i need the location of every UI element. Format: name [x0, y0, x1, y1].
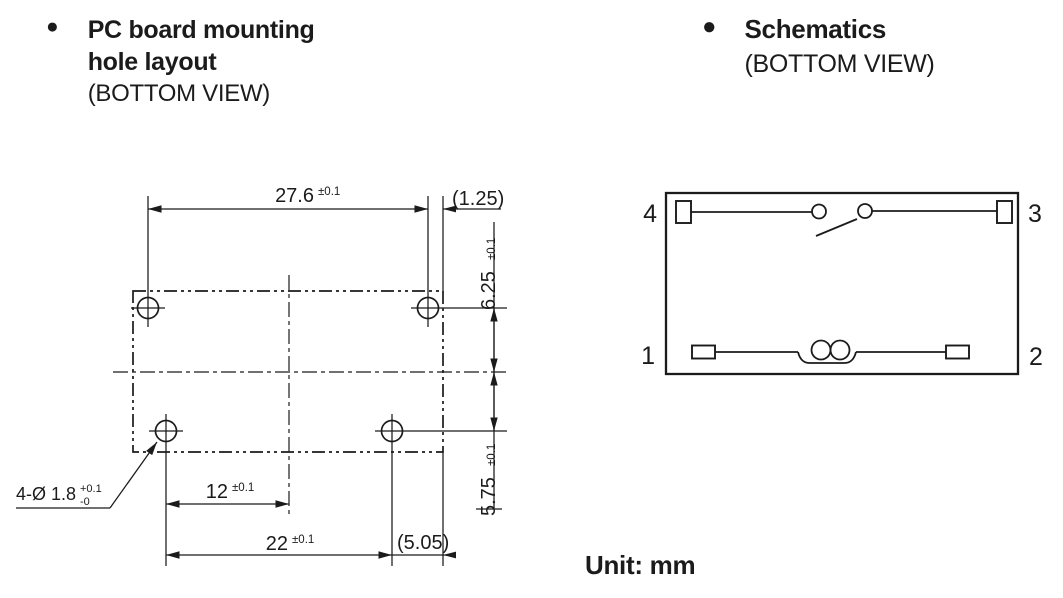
hole-callout-label: 4-Ø 1.8	[16, 484, 76, 504]
bullet-icon: ●	[46, 16, 59, 37]
dim-bottom-edge-offset: (5.05)	[397, 532, 449, 554]
dim-bottom-half-pitch-value: 12	[206, 481, 228, 503]
pin-label-1: 1	[641, 342, 655, 370]
dim-center-to-top-row-value: 6.25	[478, 271, 500, 310]
dimension-lines	[148, 206, 501, 559]
unit-label: Unit: mm	[585, 550, 695, 581]
dim-top-pitch-tol: ±0.1	[318, 186, 340, 198]
dim-top-edge-offset: (1.25)	[452, 188, 504, 210]
schematic-drawing: 4 3 1 2	[620, 180, 1063, 390]
coil-loop	[812, 341, 831, 360]
mounting-holes	[138, 298, 439, 442]
right-view-label: (BOTTOM VIEW)	[745, 47, 935, 82]
mounting-hole-layout-drawing: 27.6 ±0.1 (1.25) 6.25 ±0.1 5.75 ±0.1 12 …	[0, 170, 540, 590]
dim-center-to-bottom-row-tol: ±0.1	[486, 444, 498, 466]
left-title-line1: PC board mounting	[88, 14, 315, 46]
hole-callout-tol-plus: +0.1	[80, 483, 102, 495]
pin-label-3: 3	[1028, 200, 1042, 228]
terminal-pin1	[692, 346, 715, 359]
schematics-heading: ● Schematics (BOTTOM VIEW)	[702, 12, 935, 82]
bullet-icon: ●	[702, 15, 717, 39]
terminal-pin2	[946, 346, 969, 359]
extension-lines	[131, 196, 507, 566]
datasheet-figure-panel: ● PC board mounting hole layout (BOTTOM …	[0, 0, 1063, 598]
dim-bottom-pitch-value: 22	[266, 533, 288, 555]
terminal-pin4	[676, 201, 691, 223]
dim-center-to-bottom-row-value: 5.75	[478, 477, 500, 516]
terminal-pin3	[997, 201, 1012, 223]
left-title-line2: hole layout	[88, 46, 315, 78]
dim-bottom-pitch-tol: ±0.1	[292, 534, 314, 546]
pin-label-2: 2	[1029, 343, 1043, 371]
switch-blade	[816, 219, 857, 236]
coil-circuit	[692, 341, 969, 364]
left-view-label: (BOTTOM VIEW)	[88, 78, 315, 110]
dim-center-to-top-row-tol: ±0.1	[486, 238, 498, 260]
right-title: Schematics	[745, 12, 935, 47]
dim-top-pitch-value: 27.6	[275, 185, 314, 207]
dim-bottom-half-pitch-tol: ±0.1	[232, 482, 254, 494]
hole-callout-tol-minus: -0	[80, 496, 90, 508]
mounting-hole-layout-heading: ● PC board mounting hole layout (BOTTOM …	[46, 14, 315, 110]
contact-point-right	[858, 204, 872, 218]
coil-loop	[831, 341, 850, 360]
pin-label-4: 4	[643, 200, 657, 228]
contact-point-left	[812, 205, 826, 219]
contact-circuit	[676, 201, 1012, 236]
centerlines	[113, 275, 508, 514]
